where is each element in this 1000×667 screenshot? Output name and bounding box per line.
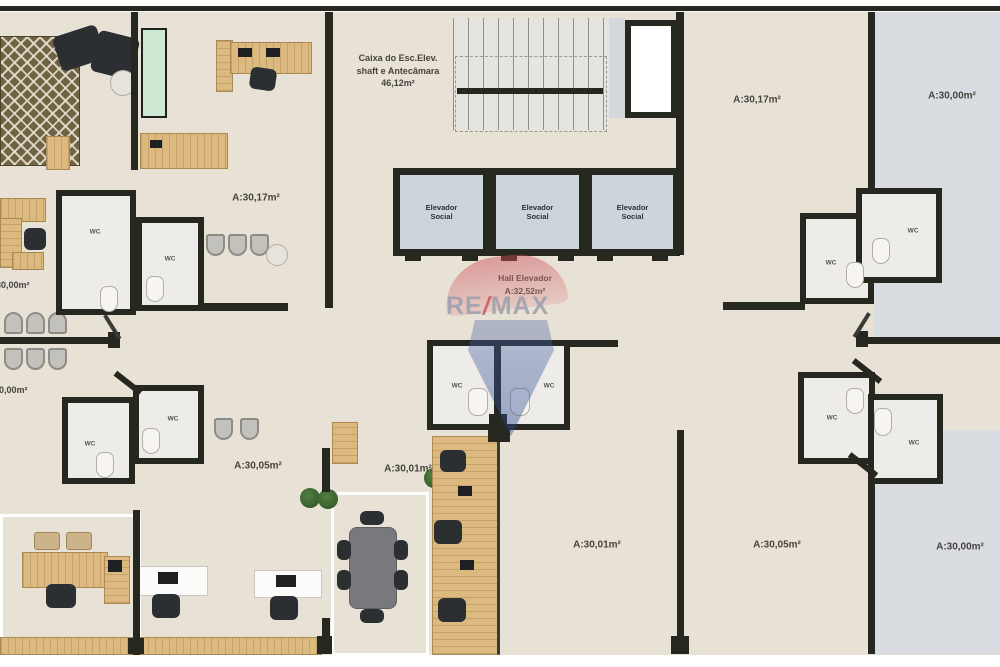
elevator-door-jamb bbox=[405, 252, 421, 261]
conference-chair bbox=[337, 570, 351, 590]
monitor bbox=[266, 48, 280, 57]
shaft-label-line3: 46,12m² bbox=[330, 77, 466, 90]
shaft-area-label: Caixa do Esc.Elev. shaft e Antecâmara 46… bbox=[330, 52, 466, 90]
room-area-label-left-lower: A:30,05m² bbox=[234, 461, 282, 472]
monitor bbox=[460, 560, 474, 570]
bottom-margin bbox=[0, 655, 1000, 667]
wc-pod bbox=[56, 190, 136, 315]
wall-end-cap bbox=[317, 636, 332, 654]
room-area-label-bottom-right-inner: A:30,05m² bbox=[753, 540, 801, 551]
room-area-label-top-right-outer: A:30,00m² bbox=[928, 91, 976, 102]
wc-label: WC bbox=[908, 228, 919, 235]
interior-wall bbox=[322, 448, 330, 492]
toilet bbox=[146, 276, 164, 302]
guest-chair bbox=[34, 532, 60, 550]
office-chair bbox=[152, 594, 180, 618]
wc-label: WC bbox=[90, 229, 101, 236]
floor-plan: Elevador Social Elevador Social Elevador… bbox=[0, 0, 1000, 667]
desk bbox=[140, 133, 228, 169]
elevator-cell-1: Elevador Social bbox=[393, 168, 490, 256]
wall-end-cap bbox=[671, 636, 689, 654]
corridor-wall-left bbox=[0, 337, 113, 344]
remax-max: MAX bbox=[491, 292, 550, 320]
green-cabinet bbox=[141, 28, 167, 118]
monitor bbox=[238, 48, 252, 57]
toilet bbox=[872, 238, 890, 264]
toilet bbox=[142, 428, 160, 454]
waiting-chair bbox=[214, 418, 233, 440]
elevator-label: Elevador bbox=[522, 203, 554, 212]
room-area-label-center-lower: A:30,01m² bbox=[384, 464, 432, 475]
waiting-chair bbox=[26, 312, 45, 334]
waiting-chair bbox=[26, 348, 45, 370]
elevator-label: Social bbox=[526, 212, 548, 221]
monitor bbox=[150, 140, 162, 148]
waiting-chair bbox=[48, 312, 67, 334]
conference-chair bbox=[337, 540, 351, 560]
wc-pod bbox=[133, 385, 204, 464]
conference-chair bbox=[360, 609, 384, 623]
toilet bbox=[846, 388, 864, 414]
conference-chair bbox=[394, 570, 408, 590]
wc-label: WC bbox=[165, 256, 176, 263]
stair-handrail bbox=[457, 88, 603, 94]
room-area-label-top-right-inner: A:30,17m² bbox=[733, 95, 781, 106]
interior-wall bbox=[133, 510, 140, 655]
elevator-label: Social bbox=[621, 212, 643, 221]
remax-wordmark: RE/MAX bbox=[446, 292, 549, 321]
wc-label: WC bbox=[826, 260, 837, 267]
watermark-remax: RE/MAX bbox=[428, 248, 608, 448]
room-wall bbox=[723, 302, 805, 310]
conference-table bbox=[349, 527, 397, 609]
elevator-cell-2: Elevador Social bbox=[489, 168, 586, 256]
toilet bbox=[846, 262, 864, 288]
wc-label: WC bbox=[827, 415, 838, 422]
office-chair bbox=[440, 450, 466, 472]
stair-flight-outline bbox=[455, 56, 607, 132]
office-chair bbox=[46, 584, 76, 608]
office-chair bbox=[24, 228, 46, 250]
conference-chair bbox=[394, 540, 408, 560]
room-area-label-left-edge-upper: 30,00m² bbox=[0, 280, 30, 290]
wc-pod bbox=[856, 188, 942, 283]
office-chair bbox=[249, 66, 278, 91]
shaft-label-line2: shaft e Antecâmara bbox=[330, 65, 466, 78]
shaft-wall-right bbox=[676, 12, 684, 255]
duct-shaft bbox=[625, 20, 677, 118]
remax-balloon-bottom bbox=[468, 320, 554, 436]
guest-chair bbox=[66, 532, 92, 550]
monitor bbox=[108, 560, 122, 572]
elevator-label: Elevador bbox=[426, 203, 458, 212]
interior-wall bbox=[868, 484, 875, 654]
elevator-label: Elevador bbox=[617, 203, 649, 212]
toilet bbox=[100, 286, 118, 312]
waiting-chair bbox=[4, 312, 23, 334]
waiting-chair bbox=[206, 234, 225, 256]
wc-label: WC bbox=[168, 416, 179, 423]
monitor bbox=[158, 572, 178, 584]
room-top-right-outer-floor bbox=[874, 12, 1000, 338]
monitor bbox=[276, 575, 296, 587]
corridor-wall-right bbox=[862, 337, 1000, 344]
office-chair bbox=[434, 520, 462, 544]
desk bbox=[22, 552, 108, 588]
elevator-cell-3: Elevador Social bbox=[585, 168, 680, 256]
console-table bbox=[12, 252, 44, 270]
remax-slash: / bbox=[483, 292, 491, 320]
interior-wall bbox=[131, 12, 138, 170]
toilet bbox=[874, 408, 892, 436]
monitor bbox=[458, 486, 472, 496]
waiting-chair bbox=[4, 348, 23, 370]
toilet bbox=[96, 452, 114, 478]
exterior-wall-top bbox=[0, 6, 1000, 11]
room-area-label-bottom-right-outer: A:30,00m² bbox=[936, 542, 984, 553]
waiting-chair bbox=[48, 348, 67, 370]
remax-re: RE bbox=[446, 292, 483, 320]
plant bbox=[318, 489, 338, 509]
interior-wall bbox=[677, 430, 684, 653]
shaft-label-line1: Caixa do Esc.Elev. bbox=[330, 52, 466, 65]
balcony-deck bbox=[0, 637, 322, 655]
office-chair bbox=[270, 596, 298, 620]
wc-label: WC bbox=[85, 441, 96, 448]
elevator-label: Social bbox=[430, 212, 452, 221]
plant bbox=[300, 488, 320, 508]
wall-end-cap bbox=[128, 638, 144, 654]
room-area-label-left-upper: A:30,17m² bbox=[232, 193, 280, 204]
interior-wall bbox=[868, 12, 875, 190]
cabinet bbox=[332, 422, 358, 464]
elevator-door-jamb bbox=[652, 252, 668, 261]
round-table bbox=[266, 244, 288, 266]
room-area-label-left-edge-lower: 30,00m² bbox=[0, 385, 28, 395]
conference-chair bbox=[360, 511, 384, 525]
waiting-chair bbox=[228, 234, 247, 256]
side-table bbox=[46, 136, 70, 170]
waiting-chair bbox=[240, 418, 259, 440]
office-chair bbox=[438, 598, 466, 622]
room-area-label-bottom-center: A:30,01m² bbox=[573, 540, 621, 551]
wc-label: WC bbox=[909, 440, 920, 447]
